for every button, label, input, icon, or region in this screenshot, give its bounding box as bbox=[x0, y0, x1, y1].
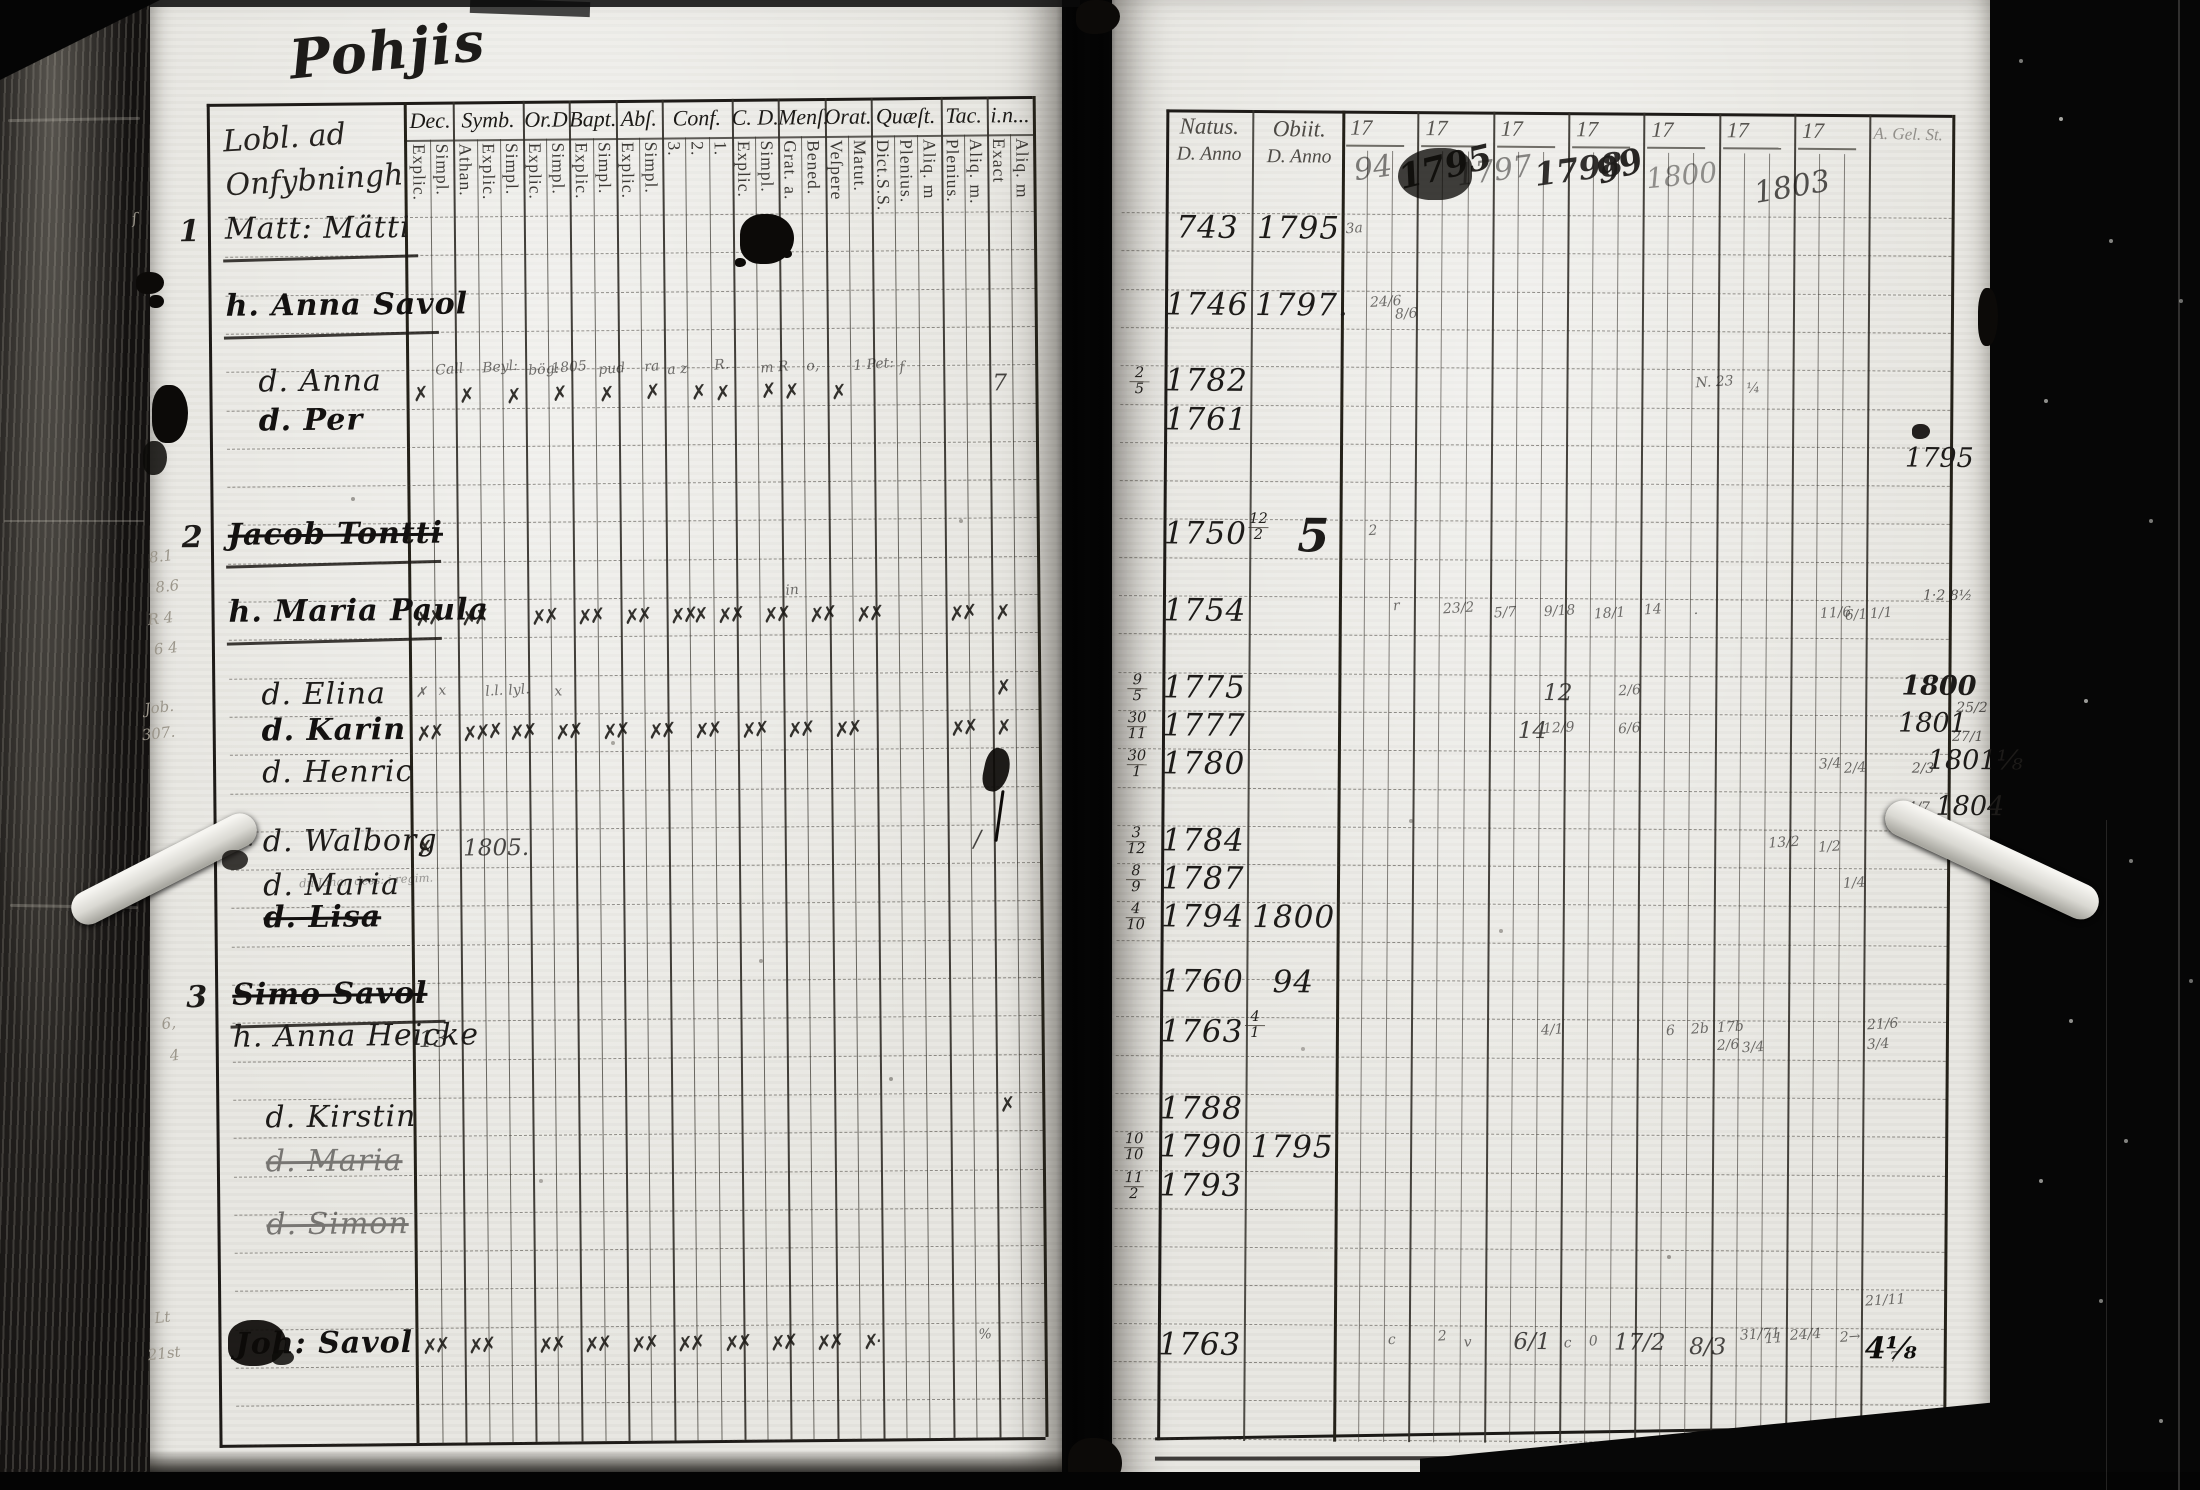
ledger-book-scan: Pohjis Lobl. ad Onfybningh Dec.Explic.Si… bbox=[0, 0, 2200, 1490]
grid-mark: 3a bbox=[1345, 220, 1363, 237]
row-rule bbox=[1118, 787, 1948, 794]
year-prefix-label: 17 bbox=[1350, 115, 1372, 141]
natus-year: 743 bbox=[1163, 209, 1251, 246]
row-rule bbox=[1121, 327, 1951, 334]
natus-day-fraction: 25 bbox=[1122, 366, 1156, 397]
natus-year: 1763 bbox=[1158, 1014, 1246, 1051]
row-rule bbox=[1114, 1246, 1944, 1253]
obiit-year: 1795 bbox=[1255, 210, 1341, 247]
grid-mark: 23/2 bbox=[1443, 599, 1475, 617]
margin-year: 27/1 bbox=[1952, 729, 1984, 745]
margin-year: 2/3 bbox=[1912, 761, 1935, 777]
obiit-column-header: Obiit. bbox=[1254, 116, 1344, 143]
grid-mark: 3/4 bbox=[1818, 756, 1841, 773]
scan-bottom-edge bbox=[0, 1472, 2200, 1490]
obiit-entry: 5 bbox=[1297, 509, 1329, 563]
grid-mark: 21/11 bbox=[1865, 1292, 1906, 1311]
grid-mark: 1/1 bbox=[1870, 605, 1893, 622]
page-specks bbox=[0, 0, 2, 2]
grid-mark: 8/6 bbox=[1395, 305, 1418, 322]
margin-year: 1800 bbox=[1901, 671, 1976, 703]
grid-mark: 2/6 bbox=[1618, 682, 1641, 699]
grid-mark: 14 bbox=[1644, 601, 1663, 618]
grid-mark: 2→ bbox=[1839, 1328, 1861, 1345]
row-rule bbox=[1115, 1208, 1945, 1215]
natus-year: 1777 bbox=[1160, 707, 1248, 744]
grid-mark: 17/2 bbox=[1614, 1329, 1666, 1355]
natus-year: 1775 bbox=[1160, 669, 1248, 706]
row-rule bbox=[1119, 557, 1949, 564]
written-year: 1803 bbox=[1751, 164, 1832, 211]
grid-mark: 5/7 bbox=[1493, 604, 1516, 621]
grid-mark: r bbox=[1393, 598, 1401, 614]
natus-day-fraction: 410 bbox=[1119, 902, 1153, 933]
grid-mark: 24/4 bbox=[1789, 1326, 1821, 1344]
written-year: 94 bbox=[1352, 148, 1394, 188]
row-rule bbox=[1121, 250, 1951, 257]
grid-mark: 1/4 bbox=[1843, 875, 1866, 892]
natus-year: 1793 bbox=[1157, 1167, 1245, 1204]
grid-mark: v bbox=[1463, 1334, 1472, 1350]
natus-year: 1790 bbox=[1157, 1129, 1245, 1166]
film-scratch bbox=[2106, 820, 2107, 1490]
year-prefix-label: 17 bbox=[1425, 115, 1447, 141]
natus-day-fraction: 89 bbox=[1119, 864, 1153, 895]
natus-year: 1760 bbox=[1158, 963, 1246, 1000]
grid-mark: 2 bbox=[1438, 1328, 1448, 1345]
grid-mark: 1/2 bbox=[1818, 838, 1841, 855]
grid-mark: c bbox=[1563, 1335, 1572, 1351]
year-prefix-underline bbox=[1647, 147, 1705, 149]
grid-mark: 12/9 bbox=[1542, 719, 1574, 737]
natus-day-fraction: 301 bbox=[1120, 749, 1154, 780]
year-prefix-underline bbox=[1798, 148, 1856, 150]
grid-mark: 6/1 bbox=[1844, 607, 1867, 624]
natus-column-header: Natus. bbox=[1164, 113, 1254, 140]
year-group-line bbox=[1484, 112, 1495, 1443]
grid-mark: 4/1 bbox=[1540, 1022, 1563, 1039]
natus-year: 1750 bbox=[1161, 516, 1249, 553]
grid-mark: 0 bbox=[1588, 1333, 1598, 1350]
natus-column-subheader: D. Anno bbox=[1162, 143, 1256, 166]
year-group-line bbox=[1559, 112, 1570, 1443]
year-prefix-underline bbox=[1723, 147, 1781, 149]
grid-mark: 17b bbox=[1716, 1019, 1744, 1037]
year-prefix-label: 17 bbox=[1727, 117, 1749, 143]
obiit-column-subheader: D. Anno bbox=[1254, 146, 1344, 169]
grid-mark: 6/6 bbox=[1618, 720, 1641, 737]
end-column-label: A. Gel. St. bbox=[1866, 124, 1950, 146]
margin-year: 1804 bbox=[1935, 791, 2004, 822]
natus-year: 1787 bbox=[1159, 860, 1247, 897]
grid-mark: 2 bbox=[1368, 523, 1378, 540]
grid-mark: N. 23 bbox=[1695, 373, 1734, 391]
year-group-line bbox=[1785, 114, 1796, 1445]
scan-top-edge bbox=[150, 0, 1080, 7]
stray-line bbox=[1155, 1456, 1465, 1461]
grid-mark: 12 bbox=[1543, 680, 1572, 706]
row-rule bbox=[1120, 480, 1950, 487]
obiit-year: 1800 bbox=[1251, 899, 1337, 936]
grid-mark: 6 bbox=[1666, 1023, 1676, 1040]
natus-year: 1754 bbox=[1161, 592, 1249, 629]
margin-year: 1801⅛ bbox=[1928, 745, 2023, 777]
year-group-line bbox=[1710, 113, 1721, 1444]
year-group-line bbox=[1634, 113, 1645, 1444]
obiit-year: 94 bbox=[1250, 964, 1336, 1001]
natus-year: 1780 bbox=[1160, 746, 1248, 783]
natus-year: 1788 bbox=[1157, 1090, 1245, 1127]
row-rule bbox=[1116, 1055, 1946, 1062]
margin-year: 25/2 bbox=[1956, 700, 1988, 716]
grid-mark: 21/6 bbox=[1867, 1016, 1899, 1034]
year-prefix-label: 17 bbox=[1501, 116, 1523, 142]
obiit-small-fraction: 41 bbox=[1238, 1010, 1272, 1041]
obiit-small-fraction: 122 bbox=[1241, 512, 1275, 543]
film-scratch bbox=[2178, 0, 2180, 1490]
grid-mark: 2/4 bbox=[1843, 760, 1866, 777]
year-prefix-label: 17 bbox=[1802, 118, 1824, 144]
grid-mark: 3/4 bbox=[1741, 1039, 1764, 1056]
natus-day-fraction: 1010 bbox=[1117, 1132, 1151, 1163]
grid-mark: 18/1 bbox=[1593, 605, 1625, 623]
grid-mark: 2/6 bbox=[1716, 1037, 1739, 1054]
natus-year: 1784 bbox=[1159, 822, 1247, 859]
natus-day-fraction: 112 bbox=[1117, 1171, 1151, 1202]
natus-year: 1782 bbox=[1162, 363, 1250, 400]
year-prefix-label: 17 bbox=[1651, 117, 1673, 143]
right-page-content: Natus. D. Anno Obiit. D. Anno A. Gel. St… bbox=[0, 0, 2200, 1490]
right-table-right-border bbox=[1943, 115, 1955, 1446]
row-rule bbox=[1117, 940, 1947, 947]
margin-year: 1795 bbox=[1905, 443, 1974, 474]
grid-mark: 2b bbox=[1691, 1021, 1710, 1038]
margin-year: 1·2 8½ bbox=[1923, 588, 1972, 604]
year-prefix-label: 17 bbox=[1576, 116, 1598, 142]
grid-mark: 7 bbox=[1889, 1349, 1899, 1366]
obiit-year: 1795 bbox=[1249, 1129, 1335, 1166]
natus-year: 1761 bbox=[1162, 401, 1250, 438]
row-rule bbox=[1119, 633, 1949, 640]
written-year: 1800 bbox=[1645, 156, 1719, 196]
year-prefix-underline bbox=[1346, 145, 1404, 147]
natus-day-fraction: 312 bbox=[1119, 826, 1153, 857]
grid-mark: c bbox=[1388, 1331, 1397, 1347]
grid-mark: · bbox=[1694, 606, 1699, 622]
grid-mark: 6/1 bbox=[1513, 1329, 1550, 1355]
grid-mark: 11 bbox=[1764, 1330, 1783, 1347]
natus-year: 1794 bbox=[1159, 899, 1247, 936]
natus-day-fraction: 95 bbox=[1120, 673, 1154, 704]
grid-mark: 9/18 bbox=[1543, 602, 1575, 620]
row-rule bbox=[1114, 1284, 1944, 1291]
natus-year: 1763 bbox=[1156, 1326, 1244, 1363]
year-prefix-underline bbox=[1497, 146, 1555, 148]
grid-mark: ¼ bbox=[1746, 380, 1761, 397]
grid-mark: 13/2 bbox=[1768, 834, 1800, 852]
ink-overwrite-smudge bbox=[1398, 148, 1472, 200]
natus-day-fraction: 3011 bbox=[1120, 711, 1154, 742]
row-rule bbox=[1120, 442, 1950, 449]
natus-year: 1746 bbox=[1163, 286, 1251, 323]
grid-mark: 3/4 bbox=[1866, 1036, 1889, 1053]
grid-mark: 8/3 bbox=[1689, 1334, 1726, 1360]
row-rule bbox=[1113, 1399, 1943, 1406]
year-group-line bbox=[1860, 114, 1871, 1445]
obiit-year: 1797. bbox=[1255, 287, 1341, 324]
